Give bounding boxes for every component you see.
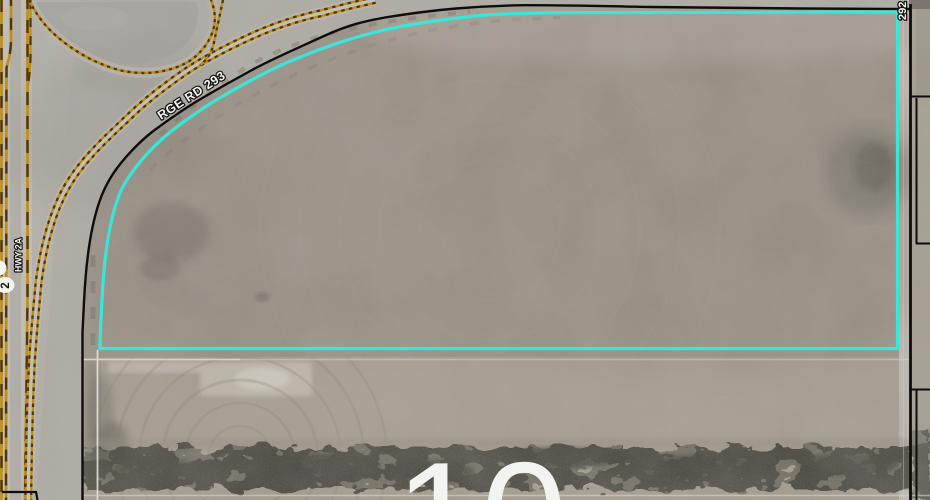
svg-text:2: 2	[0, 282, 12, 288]
svg-text:292: 292	[897, 2, 909, 20]
svg-text:10: 10	[395, 430, 567, 500]
svg-text:HWY 2A: HWY 2A	[14, 237, 24, 272]
